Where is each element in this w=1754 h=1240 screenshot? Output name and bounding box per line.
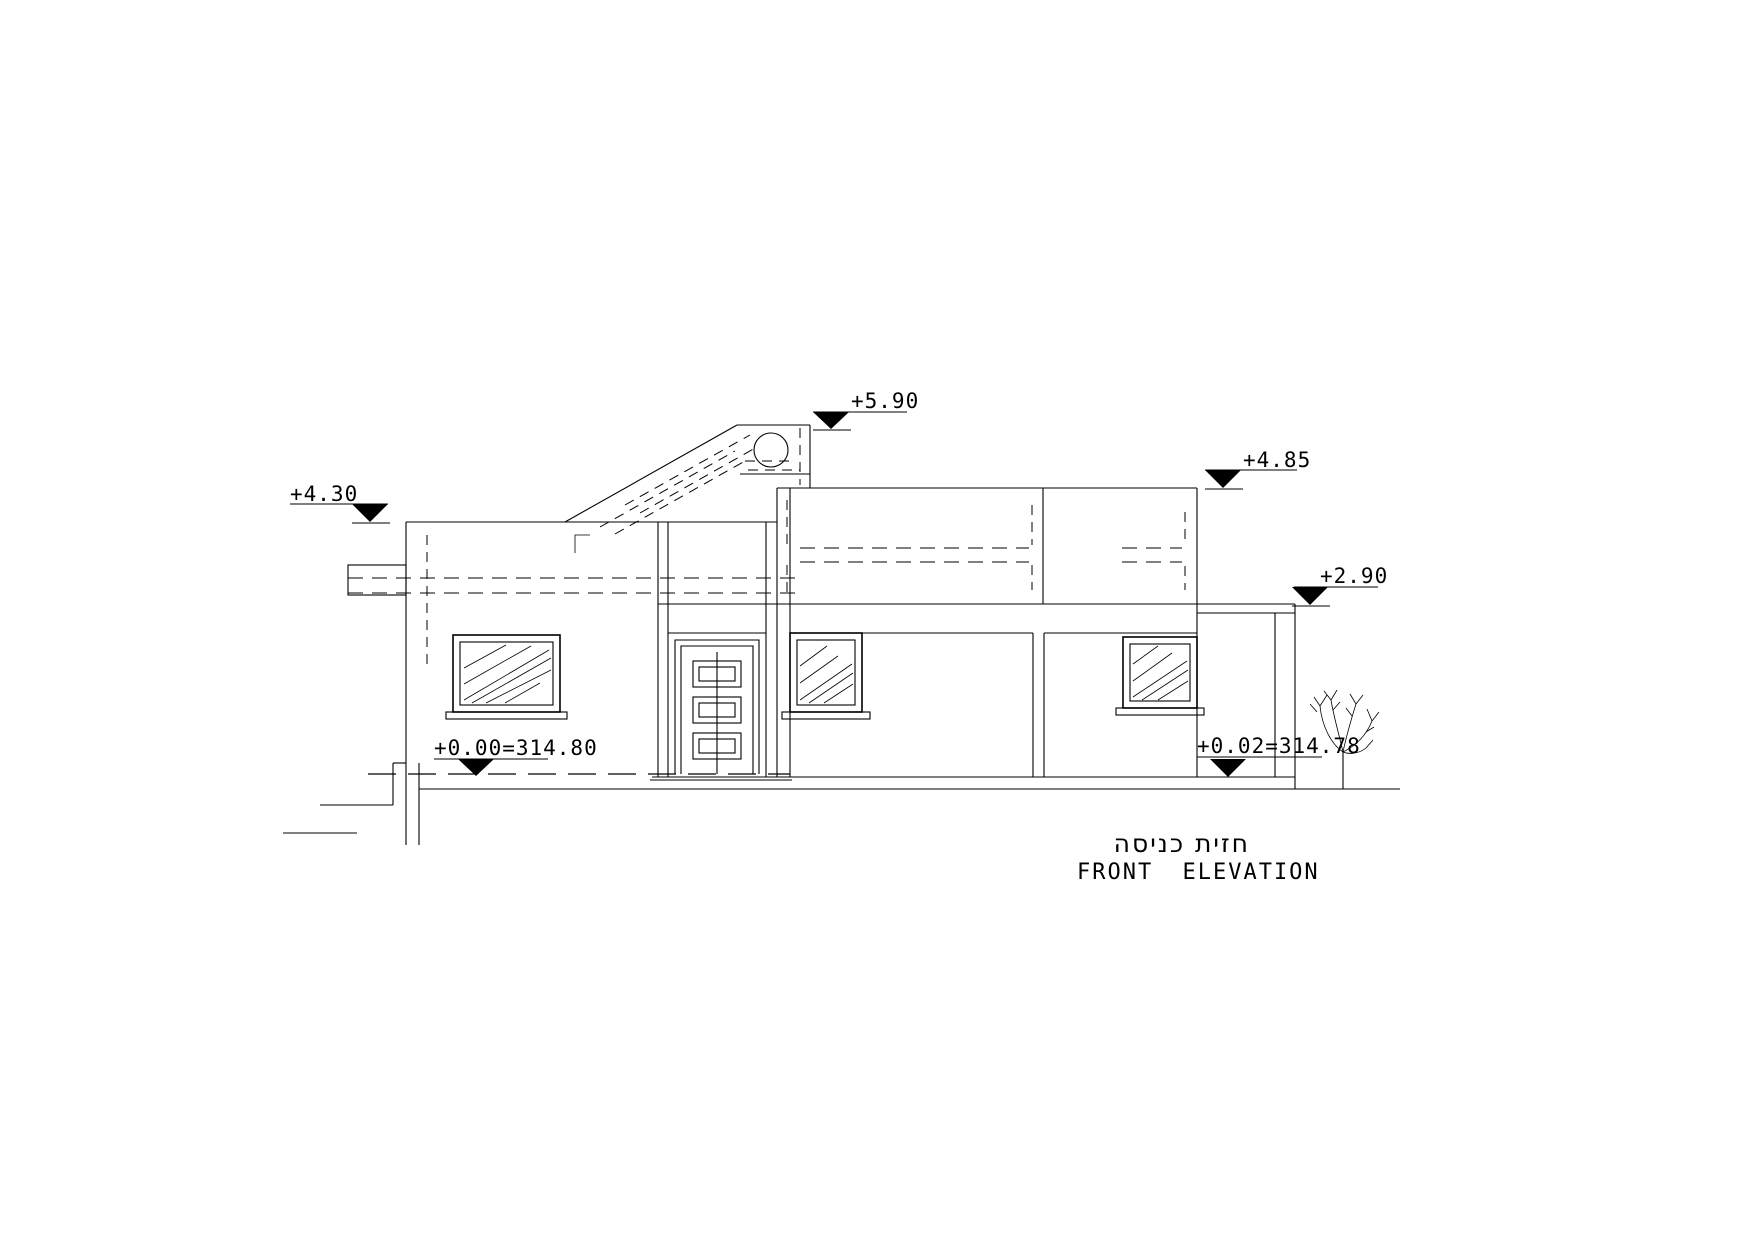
marker-0-00: +0.00=314.80 [434, 736, 598, 776]
window-2-glass-hatch [800, 646, 853, 703]
window-2-sill [782, 712, 870, 719]
level-triangle [1292, 587, 1328, 605]
title-english: FRONT ELEVATION [1077, 860, 1320, 885]
parapet-hidden-lines [787, 500, 1185, 595]
marker-5-90: +5.90 [813, 389, 919, 430]
level-triangle [1205, 470, 1241, 488]
entrance-door [650, 633, 792, 780]
projecting-beam [348, 565, 406, 595]
window-3 [1116, 637, 1204, 715]
title-hebrew: חזית כניסה [1114, 829, 1250, 858]
marker-label: +2.90 [1320, 564, 1388, 588]
level-triangle [813, 412, 849, 429]
marker-2-90: +2.90 [1292, 564, 1388, 606]
window-1-sill [446, 712, 567, 719]
marker-label: +4.30 [290, 482, 358, 506]
solar-water-heater [565, 425, 810, 534]
marker-4-30: +4.30 [290, 482, 390, 523]
marker-label: +5.90 [851, 389, 919, 413]
collector-hidden-edges [600, 435, 800, 534]
entrance-bay [650, 488, 792, 780]
marker-label: +0.00=314.80 [434, 736, 598, 760]
left-block [348, 522, 797, 719]
front-elevation-drawing: +5.90 +4.85 +4.30 +2.90 +0.00=314.80 [0, 0, 1754, 1240]
window-2 [782, 633, 870, 719]
hidden-corner-mark [575, 535, 590, 553]
marker-4-85: +4.85 [1205, 448, 1311, 489]
window-1-glass-hatch [464, 645, 551, 703]
marker-0-02: +0.02=314.78 [1197, 734, 1361, 777]
collector-slope [565, 425, 737, 522]
window-3-glass-hatch [1133, 646, 1188, 700]
upper-parapet-block [777, 488, 1197, 604]
level-triangle [352, 504, 388, 522]
front-elevation-sheet: +5.90 +4.85 +4.30 +2.90 +0.00=314.80 [0, 0, 1754, 1240]
level-triangle [1210, 759, 1246, 777]
boiler-tank [754, 433, 788, 467]
window-1 [446, 635, 567, 719]
marker-label: +4.85 [1243, 448, 1311, 472]
ground-lines [283, 774, 1400, 833]
window-3-sill [1116, 708, 1204, 715]
drawing-titles: חזית כניסה FRONT ELEVATION [1077, 829, 1320, 885]
